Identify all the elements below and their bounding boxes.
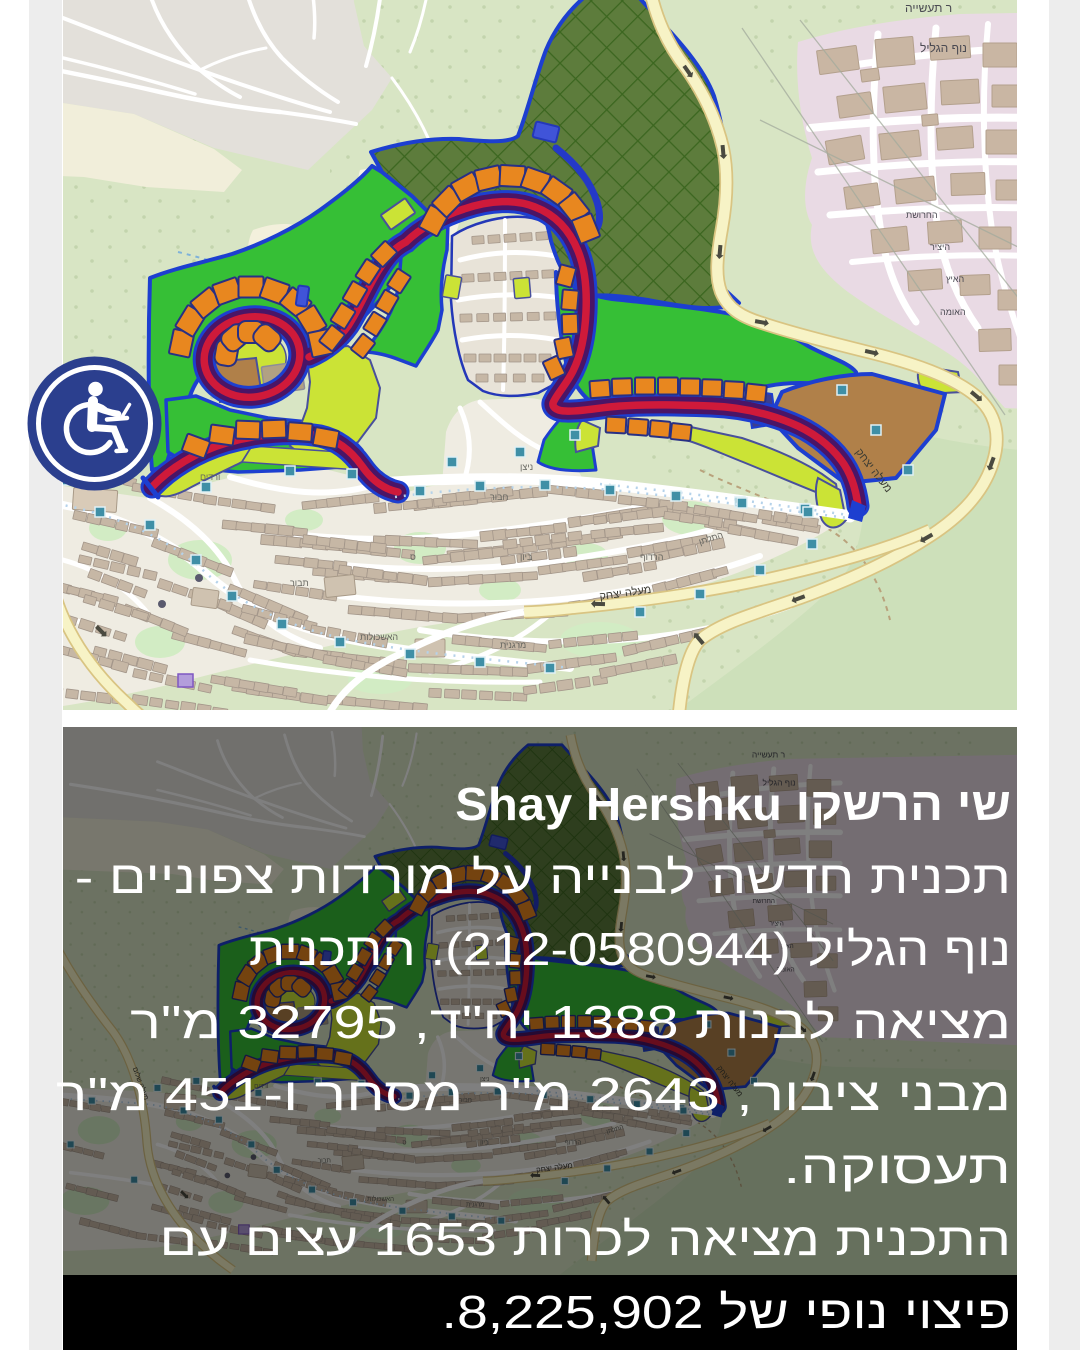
svg-text:האשכולות: האשכולות bbox=[360, 632, 398, 642]
svg-text:תבור: תבור bbox=[290, 578, 309, 588]
svg-text:ורדים: ורדים bbox=[200, 472, 220, 482]
svg-text:הרדוף: הרדוף bbox=[640, 552, 663, 562]
svg-text:האומה: האומה bbox=[940, 307, 966, 317]
svg-text:ניצן: ניצן bbox=[520, 462, 533, 472]
svg-text:חבור: חבור bbox=[490, 492, 509, 502]
svg-text:החרושת: החרושת bbox=[906, 210, 938, 220]
svg-text:האיץ: האיץ bbox=[946, 274, 964, 284]
svg-text:ר תעשייה: ר תעשייה bbox=[905, 1, 952, 15]
svg-text:נוף הגליל: נוף הגליל bbox=[920, 41, 967, 55]
svg-text:היציר: היציר bbox=[930, 242, 950, 252]
svg-text:מרגנית: מרגנית bbox=[500, 640, 526, 650]
